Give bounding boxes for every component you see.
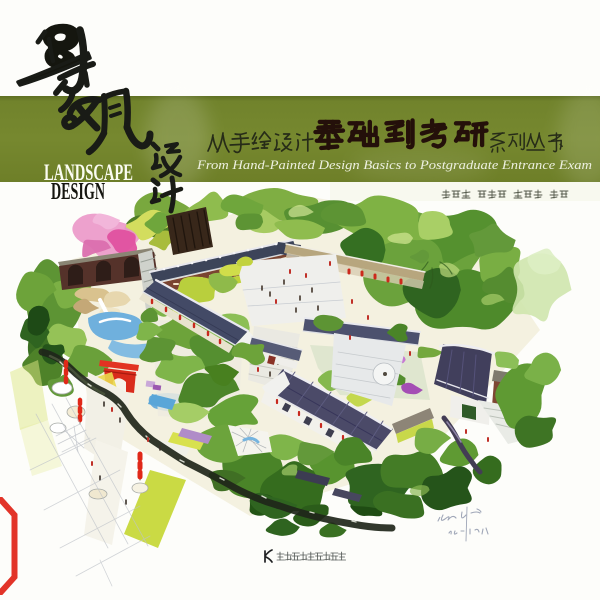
svg-text:DESIGN: DESIGN <box>51 179 105 205</box>
svg-text:From Hand-Painted Design Basic: From Hand-Painted Design Basics to Postg… <box>196 158 592 172</box>
